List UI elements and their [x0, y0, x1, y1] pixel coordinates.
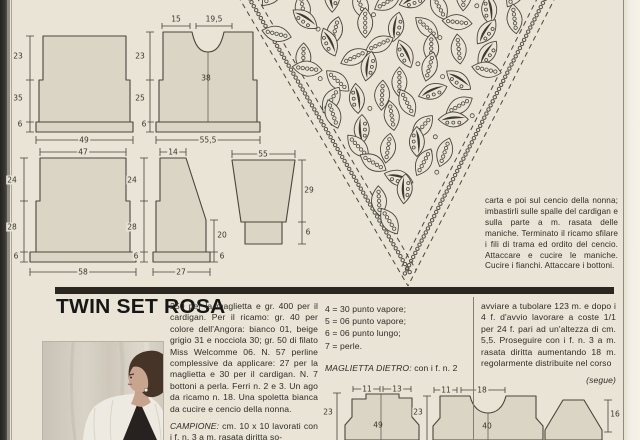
- diagram-tee-back: [26, 36, 133, 144]
- column-rule: [473, 297, 474, 440]
- diagram-tee-front: [146, 23, 260, 144]
- diagram-cardigan-back: [20, 148, 136, 276]
- diagram-back-top: [333, 386, 419, 440]
- dim-label: 13: [391, 385, 403, 394]
- dim-label: 47: [77, 148, 89, 157]
- legend-gap: [325, 352, 470, 362]
- dim-label: 27: [175, 268, 187, 277]
- dim-label: 6: [17, 120, 24, 129]
- dim-label: 23: [412, 408, 424, 417]
- diagram-front-top: [423, 387, 543, 440]
- dim-label: 20: [216, 231, 228, 240]
- stitch-legend-column: 4 = 30 punto vapore; 5 = 06 punto vapore…: [325, 303, 470, 374]
- dim-label: 38: [200, 74, 212, 83]
- finishing-text-block: carta e poi sul cencio della nonna; imba…: [485, 196, 618, 272]
- dim-label: 6: [219, 252, 226, 261]
- diagram-sleeve-cap: [545, 400, 612, 440]
- dim-label: 18: [476, 386, 488, 395]
- dim-label: 15: [170, 15, 182, 24]
- dim-label: 23: [12, 52, 24, 61]
- dim-label: 49: [372, 421, 384, 430]
- materials-text: 250 per la maglietta e gr. 400 per il ca…: [170, 301, 318, 415]
- diagram-cardigan-front: [140, 148, 218, 276]
- dim-label: 16: [609, 410, 621, 419]
- legend-item: 4 = 30 punto vapore;: [325, 303, 470, 315]
- maglietta-dietro-label: MAGLIETTA DIETRO:: [325, 363, 412, 373]
- legend-item: 6 = 06 punto lungo;: [325, 327, 470, 339]
- instructions-text: avviare a tubolare 123 m. e dopo i 4 f. …: [481, 301, 616, 369]
- dim-label: 6: [305, 228, 312, 237]
- dim-label: 6: [13, 252, 20, 261]
- instructions-column: avviare a tubolare 123 m. e dopo i 4 f. …: [481, 301, 616, 387]
- legend-item: 5 = 06 punto vapore;: [325, 315, 470, 327]
- dim-label: 6: [133, 252, 140, 261]
- magazine-page: { "article": { "title": "TWIN SET ROSA",…: [0, 0, 640, 440]
- dim-label: 14: [167, 148, 179, 157]
- model-photo: [43, 342, 163, 440]
- diagram-sleeve: [232, 150, 306, 244]
- dim-label: 28: [126, 223, 138, 232]
- dim-label: 35: [12, 94, 24, 103]
- segue-note: (segue): [481, 375, 616, 386]
- legend-item: 7 = perle.: [325, 340, 470, 352]
- dim-label: 29: [303, 186, 315, 195]
- materials-column: 250 per la maglietta e gr. 400 per il ca…: [170, 301, 318, 440]
- dim-label: 40: [481, 422, 493, 431]
- model-photo-image: [43, 342, 163, 440]
- section-divider-bar: [55, 287, 614, 294]
- maglietta-dietro-line: MAGLIETTA DIETRO: con i f. n. 2: [325, 362, 470, 374]
- dim-label: 24: [126, 176, 138, 185]
- dim-label: 25: [134, 94, 146, 103]
- dim-label: 23: [322, 408, 334, 417]
- maglietta-dietro-text: con i f. n. 2: [412, 363, 458, 373]
- dim-label: 55,5: [199, 136, 218, 145]
- dim-label: 28: [6, 223, 18, 232]
- dim-label: 6: [141, 120, 148, 129]
- dim-label: 19,5: [205, 15, 224, 24]
- campione-paragraph: CAMPIONE: cm. 10 x 10 lavorati con i f. …: [170, 421, 318, 440]
- dim-label: 24: [6, 176, 18, 185]
- dim-label: 55: [257, 150, 269, 159]
- dim-label: 49: [78, 136, 90, 145]
- dim-label: 58: [77, 268, 89, 277]
- campione-label: CAMPIONE:: [170, 421, 219, 431]
- dim-label: 11: [361, 385, 373, 394]
- dim-label: 11: [440, 386, 452, 395]
- dim-label: 23: [134, 52, 146, 61]
